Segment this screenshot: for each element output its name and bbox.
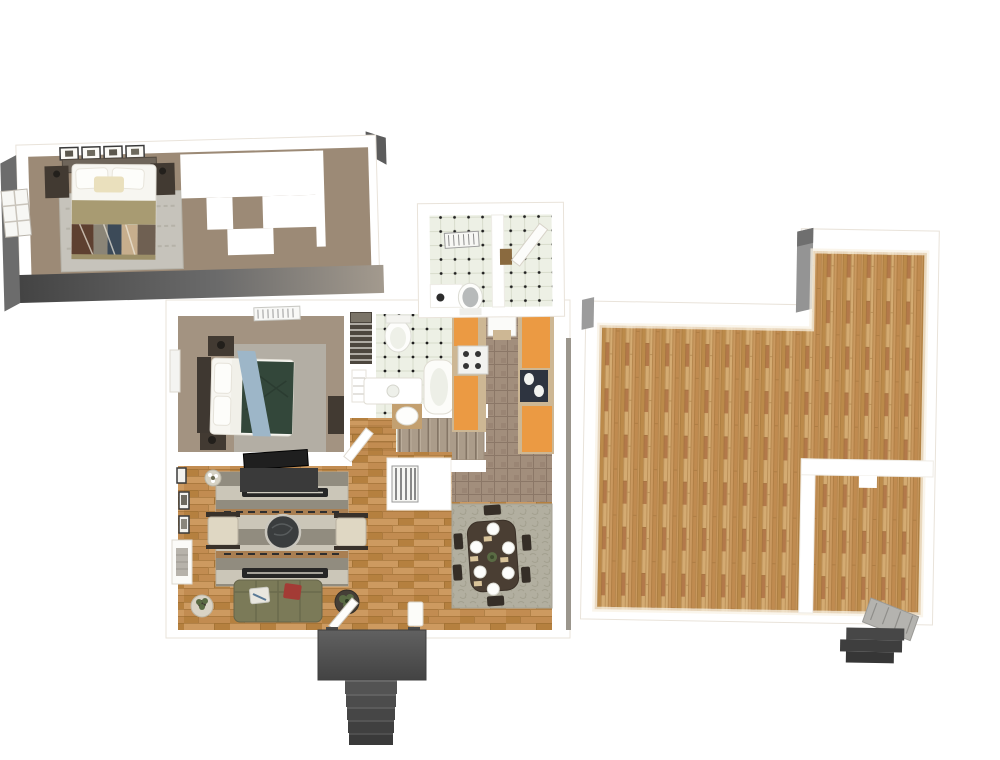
bath-counter [430,284,462,307]
plate [474,566,487,579]
utility-wall-top [801,459,933,477]
white-pillow [249,587,269,604]
burner [475,351,481,357]
patchwork-throw [71,224,155,257]
armchair-left [206,512,240,549]
plate [487,583,500,596]
corner-plant [205,470,221,486]
bath-fixture [396,407,418,425]
sofa [234,580,322,622]
fridge-front [493,330,511,340]
plate [502,567,515,580]
headboard [197,357,211,433]
tub-basin [430,368,448,406]
stove [458,346,488,374]
plate [502,541,515,554]
burner [463,351,469,357]
right-cabinet-lower [522,406,552,452]
coffee-table [266,515,300,549]
pillow [213,396,231,425]
dining-room [449,502,552,608]
armchair-right [334,513,368,550]
left-cabinet-upper [454,314,478,346]
lamp [208,436,216,444]
vanity-sink [387,385,399,397]
napkin [484,536,492,542]
burner [463,363,469,369]
utility-wall-left [799,459,816,613]
red-pillow [283,583,302,600]
side-table-left [191,595,213,617]
floor-plan-canvas [0,0,1000,760]
door-header [500,249,512,265]
main-closet [350,312,372,364]
upper-bathroom [417,202,564,318]
upper-bedroom [0,131,390,312]
lamp [217,341,225,349]
basement-level [576,224,940,664]
pillow [214,363,232,393]
sink-bowl [524,373,534,385]
gray-wall-face-left [582,297,595,330]
dining-chair [453,564,463,581]
double-bed [71,164,156,260]
main-right-wall-edge [566,338,571,630]
dining-chair [453,533,463,550]
window [1,189,31,237]
basement-exterior-steps [840,627,905,663]
dining-chair [483,504,501,515]
sink-bowl [534,385,544,397]
napkin [470,556,478,562]
blanket-edge [71,254,155,260]
plate [470,541,483,554]
plate [487,523,500,536]
burner [475,363,481,369]
accent-pillow [94,176,124,192]
fireplace-shelf [172,540,192,584]
furnace-nook [387,458,451,510]
bedroom-window [170,350,180,392]
napkin [474,581,482,587]
tan-blanket [72,200,156,225]
sink-counter [520,370,548,402]
napkin [500,557,508,563]
double-bed [210,350,294,437]
porch-landing [318,630,426,680]
porch-steps [345,680,397,745]
toilet-bowl [390,327,406,349]
utility-wall-tab [859,476,877,488]
dining-chair [487,595,505,606]
floor-plan-render [0,0,1000,760]
entry-column [408,602,423,626]
dining-chair [522,534,532,551]
toilet-tank [386,315,411,323]
shower-vent [444,231,479,248]
closet-shelves [350,324,372,360]
right-cabinet-upper [522,312,550,368]
dining-chair [521,566,531,583]
closet-clothes [351,313,371,322]
tv-console [240,468,318,492]
main-level [166,300,571,638]
left-cabinet-lower [454,376,478,430]
ceiling-vent [254,306,300,321]
dresser [328,396,344,434]
toilet-tank [460,308,482,315]
entry-porch [318,627,426,745]
